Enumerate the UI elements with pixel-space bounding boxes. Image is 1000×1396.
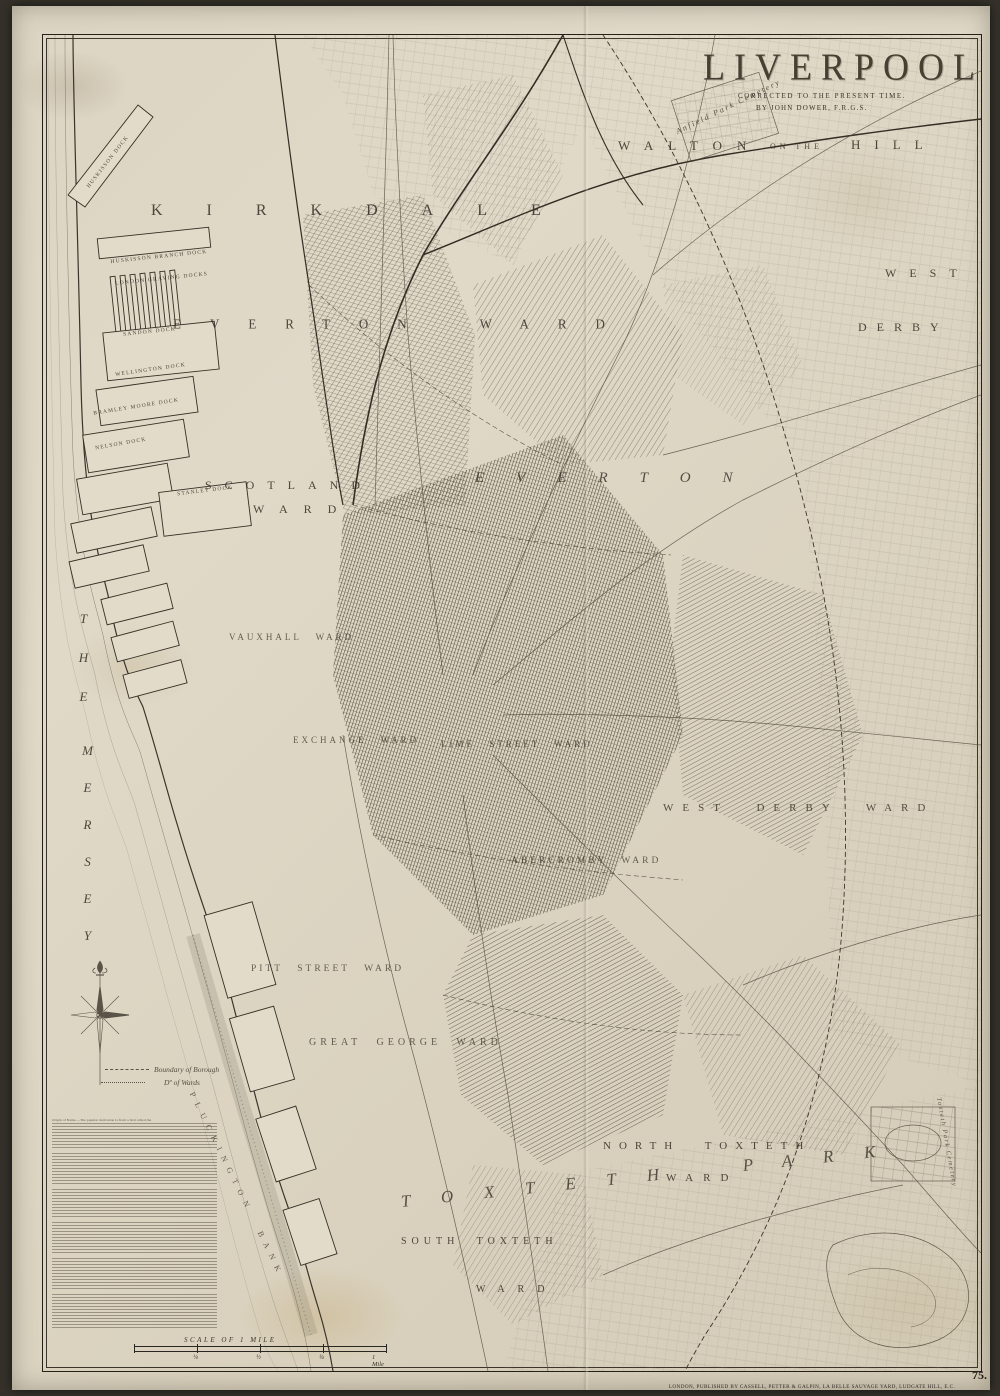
label-west-derby-upper-1: WEST <box>885 267 970 279</box>
scale-caption: SCALE OF 1 MILE <box>184 1336 387 1344</box>
scanned-map-page: { "map_colors": { "paper": "#ddd5c3", "i… <box>0 0 1000 1396</box>
label-vauxhall-ward: VAUXHALL WARD <box>229 633 354 642</box>
label-pitt-street-ward: PITT STREET WARD <box>251 965 404 975</box>
scale-tick <box>323 1344 324 1353</box>
paragraph-gap <box>52 1291 217 1293</box>
label-north-toxteth: NORTH TOXTETH <box>603 1141 811 1152</box>
scale-tick <box>260 1344 261 1353</box>
scale-tick <box>386 1344 387 1353</box>
paragraph-gap <box>52 1255 217 1257</box>
scale-tick <box>197 1344 198 1353</box>
label-walton-hill: HILL <box>851 138 937 151</box>
scale-label-half: ½ <box>256 1354 261 1361</box>
legend-boundary-borough: Boundary of Borough <box>105 1065 219 1074</box>
scale-label-quarter: ¼ <box>193 1354 198 1361</box>
scale-bar-group: SCALE OF 1 MILE ¼ ½ ¾ 1 Mile <box>134 1336 387 1352</box>
label-south-toxteth: SOUTH TOXTETH <box>401 1237 558 1247</box>
paragraph-gap <box>52 1149 217 1151</box>
label-walton: WALTON <box>618 139 761 152</box>
label-exchange-ward: EXCHANGE WARD <box>293 736 419 745</box>
legend-dotted-line <box>101 1082 145 1083</box>
label-south-toxteth-ward: WARD <box>476 1285 557 1295</box>
paragraph-gap <box>52 1185 217 1187</box>
legend-boundary-wards: Dº of Wards <box>101 1078 200 1087</box>
paragraph-gap <box>52 1219 217 1221</box>
scale-label-mile: 1 Mile <box>372 1354 387 1368</box>
map-title: LIVERPOOL <box>703 48 984 86</box>
legend-boundary-wards-label: Dº of Wards <box>164 1078 200 1087</box>
label-kirkdale: KIRKDALE <box>151 203 585 219</box>
publisher-imprint: LONDON, PUBLISHED BY CASSELL, PETTER & G… <box>622 1384 1000 1390</box>
label-walton-on-the: ON THE <box>770 143 823 151</box>
compass-rose <box>57 955 167 1115</box>
label-the-mersey-the: THE <box>77 611 90 728</box>
label-west-derby-upper-2: DERBY <box>858 321 949 333</box>
label-everton-ward: EVERTON WARD <box>173 316 634 330</box>
label-great-george-ward: GREAT GEORGE WARD <box>309 1038 502 1048</box>
legend-boundary-borough-label: Boundary of Borough <box>154 1065 219 1074</box>
statistics-fine-print <box>52 1123 217 1329</box>
map-author: BY JOHN DOWER, F.R.G.S. <box>756 105 868 112</box>
scale-label-threequarter: ¾ <box>319 1354 324 1361</box>
statistics-lead-line: Origin of Name.—The popular derivation i… <box>52 1118 219 1122</box>
scale-bar: ¼ ½ ¾ 1 Mile <box>134 1346 387 1352</box>
paper-fold-crease <box>583 6 589 1390</box>
plate-number: 75. <box>972 1368 987 1383</box>
statistics-text-block: Origin of Name.—The popular derivation i… <box>52 1118 219 1334</box>
label-west-derby-ward: WEST DERBY WARD <box>663 803 934 814</box>
label-everton-township: EVERTON <box>475 471 765 486</box>
label-lime-street-ward: LIME STREET WARD <box>441 740 593 749</box>
label-scotland-ward-2: WARD <box>253 503 352 515</box>
map-paper: LIVERPOOL CORRECTED TO THE PRESENT TIME.… <box>12 6 990 1390</box>
label-the-mersey-mersey: MERSEY <box>81 743 94 965</box>
scale-tick <box>134 1344 135 1353</box>
legend-dash-line <box>105 1069 149 1070</box>
